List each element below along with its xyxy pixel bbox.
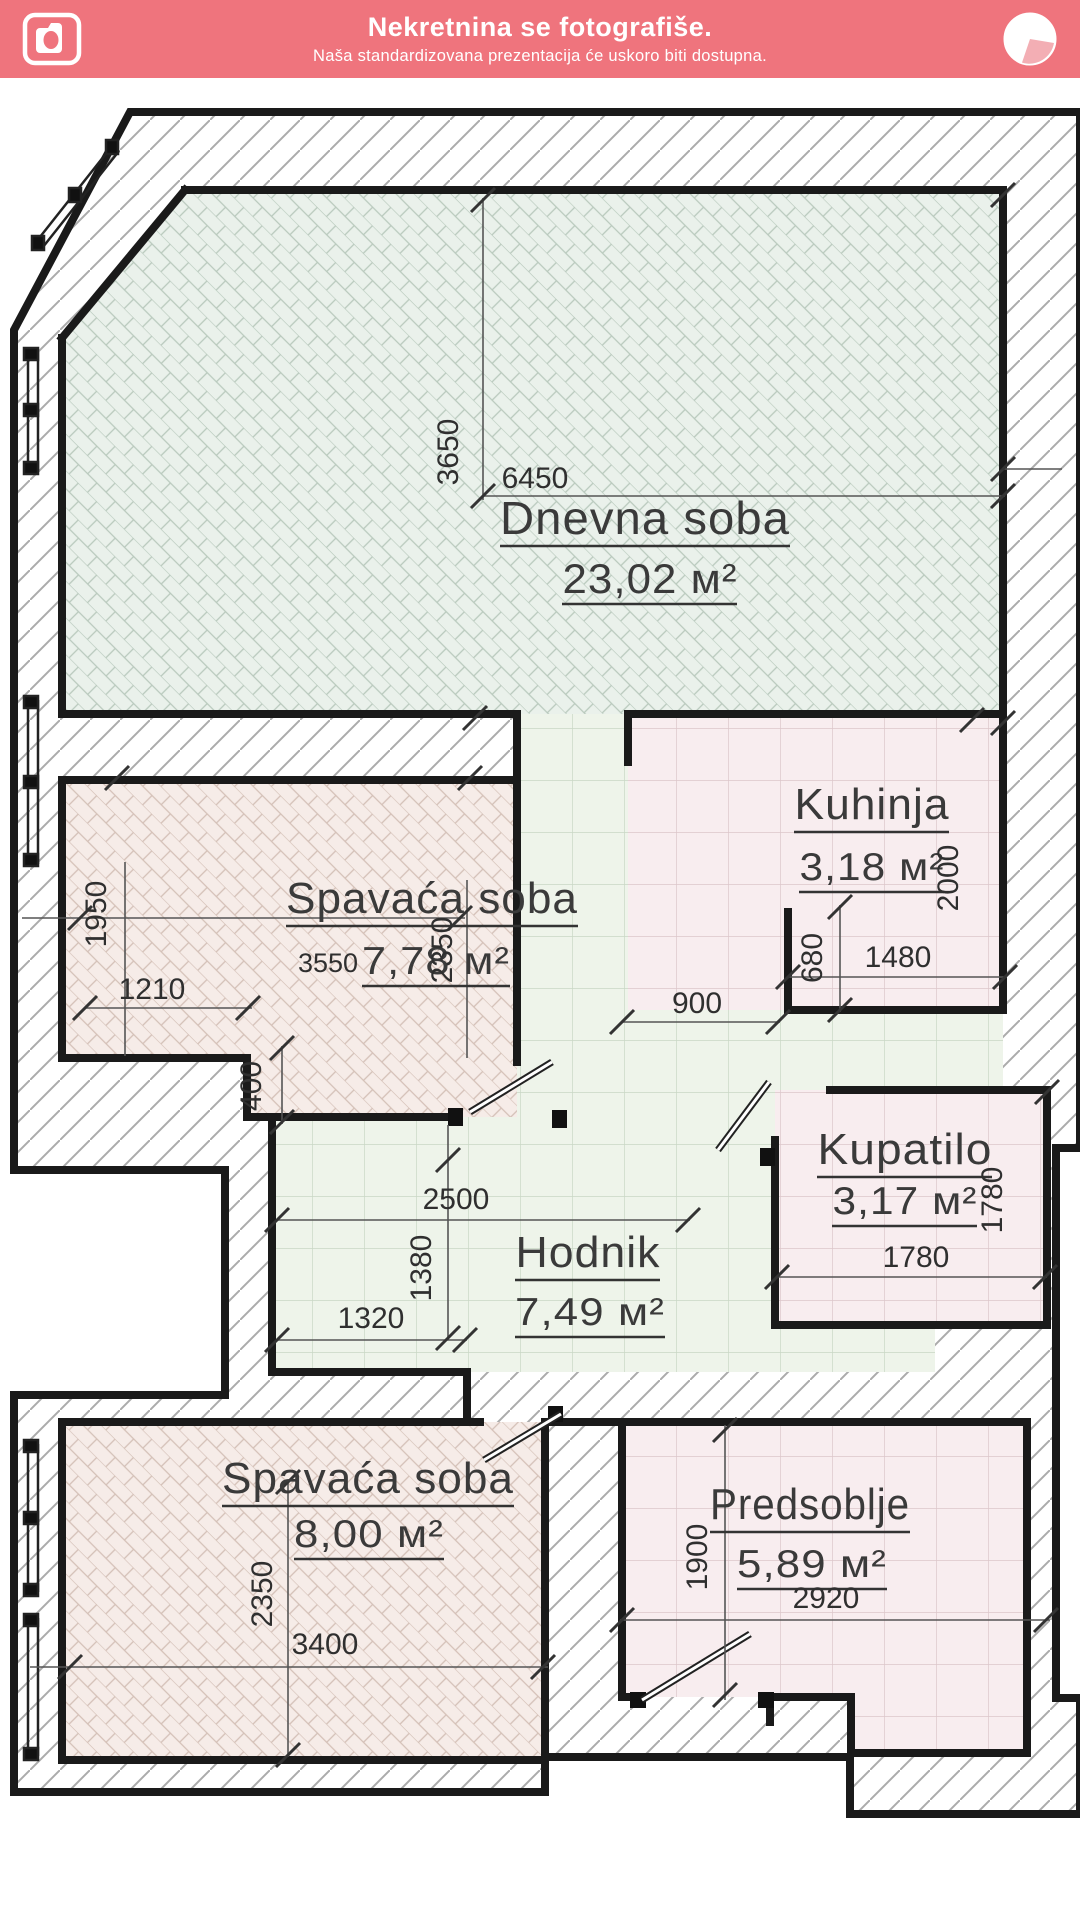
dim-bed1-step: 400 xyxy=(235,1061,268,1111)
door-hinge xyxy=(552,1110,567,1128)
room-label-dnevna-soba: Dnevna soba xyxy=(500,492,790,544)
room-area-kuhinja: 3,18 м² xyxy=(800,846,945,889)
room-area-predsoblje: 5,89 м² xyxy=(737,1543,887,1586)
dim-bed1-width: 3550 xyxy=(298,948,358,978)
camera-lens xyxy=(44,31,59,49)
status-banner: Nekretnina se fotografiše. Naša standard… xyxy=(0,0,1080,78)
room-area-kupatilo: 3,17 м² xyxy=(833,1180,978,1223)
dim-bed1-bottom: 1210 xyxy=(119,973,186,1006)
banner-title: Nekretnina se fotografiše. xyxy=(0,12,1080,43)
dim-bath-width: 1780 xyxy=(883,1241,950,1274)
dim-bath-height: 1780 xyxy=(976,1167,1009,1234)
room-area-dnevna-soba: 23,02 м² xyxy=(563,555,738,602)
dim-living-height: 3650 xyxy=(432,419,465,486)
pie-progress-icon xyxy=(1002,11,1058,67)
room-area-spavaca-2: 8,00 м² xyxy=(294,1513,444,1556)
dim-kitchen-width: 1480 xyxy=(865,941,932,974)
floor-plan: Dnevna soba 23,02 м² Spavaća soba 7,78 м… xyxy=(0,0,1080,1920)
room-label-spavaca-1: Spavaća soba xyxy=(286,874,578,923)
room-label-spavaca-2: Spavaća soba xyxy=(222,1454,514,1503)
dim-living-width: 6450 xyxy=(502,462,569,495)
dim-entry-width: 2920 xyxy=(793,1582,860,1615)
dim-bed1-height: 1950 xyxy=(80,881,113,948)
banner-text: Nekretnina se fotografiše. Naša standard… xyxy=(0,12,1080,65)
dim-hall-pass: 900 xyxy=(672,987,722,1020)
dim-bed2-height: 2350 xyxy=(246,1561,279,1628)
dim-kitchen-nook: 680 xyxy=(796,933,829,983)
door-hinge xyxy=(448,1108,463,1126)
door-hinge xyxy=(760,1148,775,1166)
dim-hall-height: 1380 xyxy=(405,1235,438,1302)
dim-kitchen-height: 2000 xyxy=(932,845,965,912)
camera-icon xyxy=(22,12,82,66)
door-hinge xyxy=(758,1692,774,1708)
dim-bed1-depth: 2350 xyxy=(426,917,459,984)
room-label-predsoblje: Predsoblje xyxy=(710,1480,910,1529)
room-area-hodnik: 7,49 м² xyxy=(515,1291,665,1334)
room-label-hodnik: Hodnik xyxy=(516,1228,661,1277)
dim-hall-width: 2500 xyxy=(423,1183,490,1216)
room-label-kuhinja: Kuhinja xyxy=(795,780,950,829)
dim-entry-height: 1900 xyxy=(681,1524,714,1591)
dim-hall-bottom: 1320 xyxy=(338,1302,405,1335)
room-label-kupatilo: Kupatilo xyxy=(818,1125,993,1174)
room-dnevna-soba xyxy=(62,190,1003,714)
banner-subtitle: Naša standardizovana prezentacija će usk… xyxy=(0,47,1080,66)
dim-bed2-width: 3400 xyxy=(292,1628,359,1661)
